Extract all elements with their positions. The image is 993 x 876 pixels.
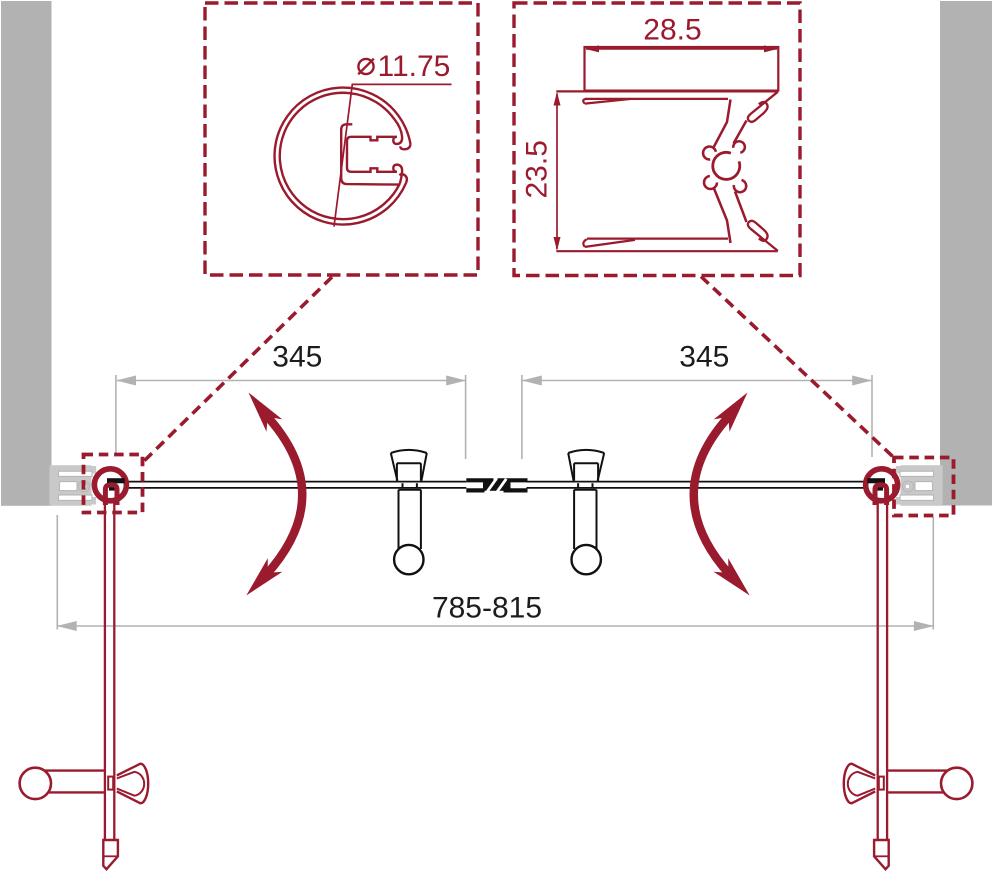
svg-text:28.5: 28.5 [643, 14, 701, 47]
svg-text:345: 345 [272, 341, 322, 374]
svg-text:11.75: 11.75 [378, 50, 451, 83]
svg-text:23.5: 23.5 [521, 140, 554, 198]
svg-text:345: 345 [679, 341, 729, 374]
svg-text:785-815: 785-815 [432, 592, 542, 625]
